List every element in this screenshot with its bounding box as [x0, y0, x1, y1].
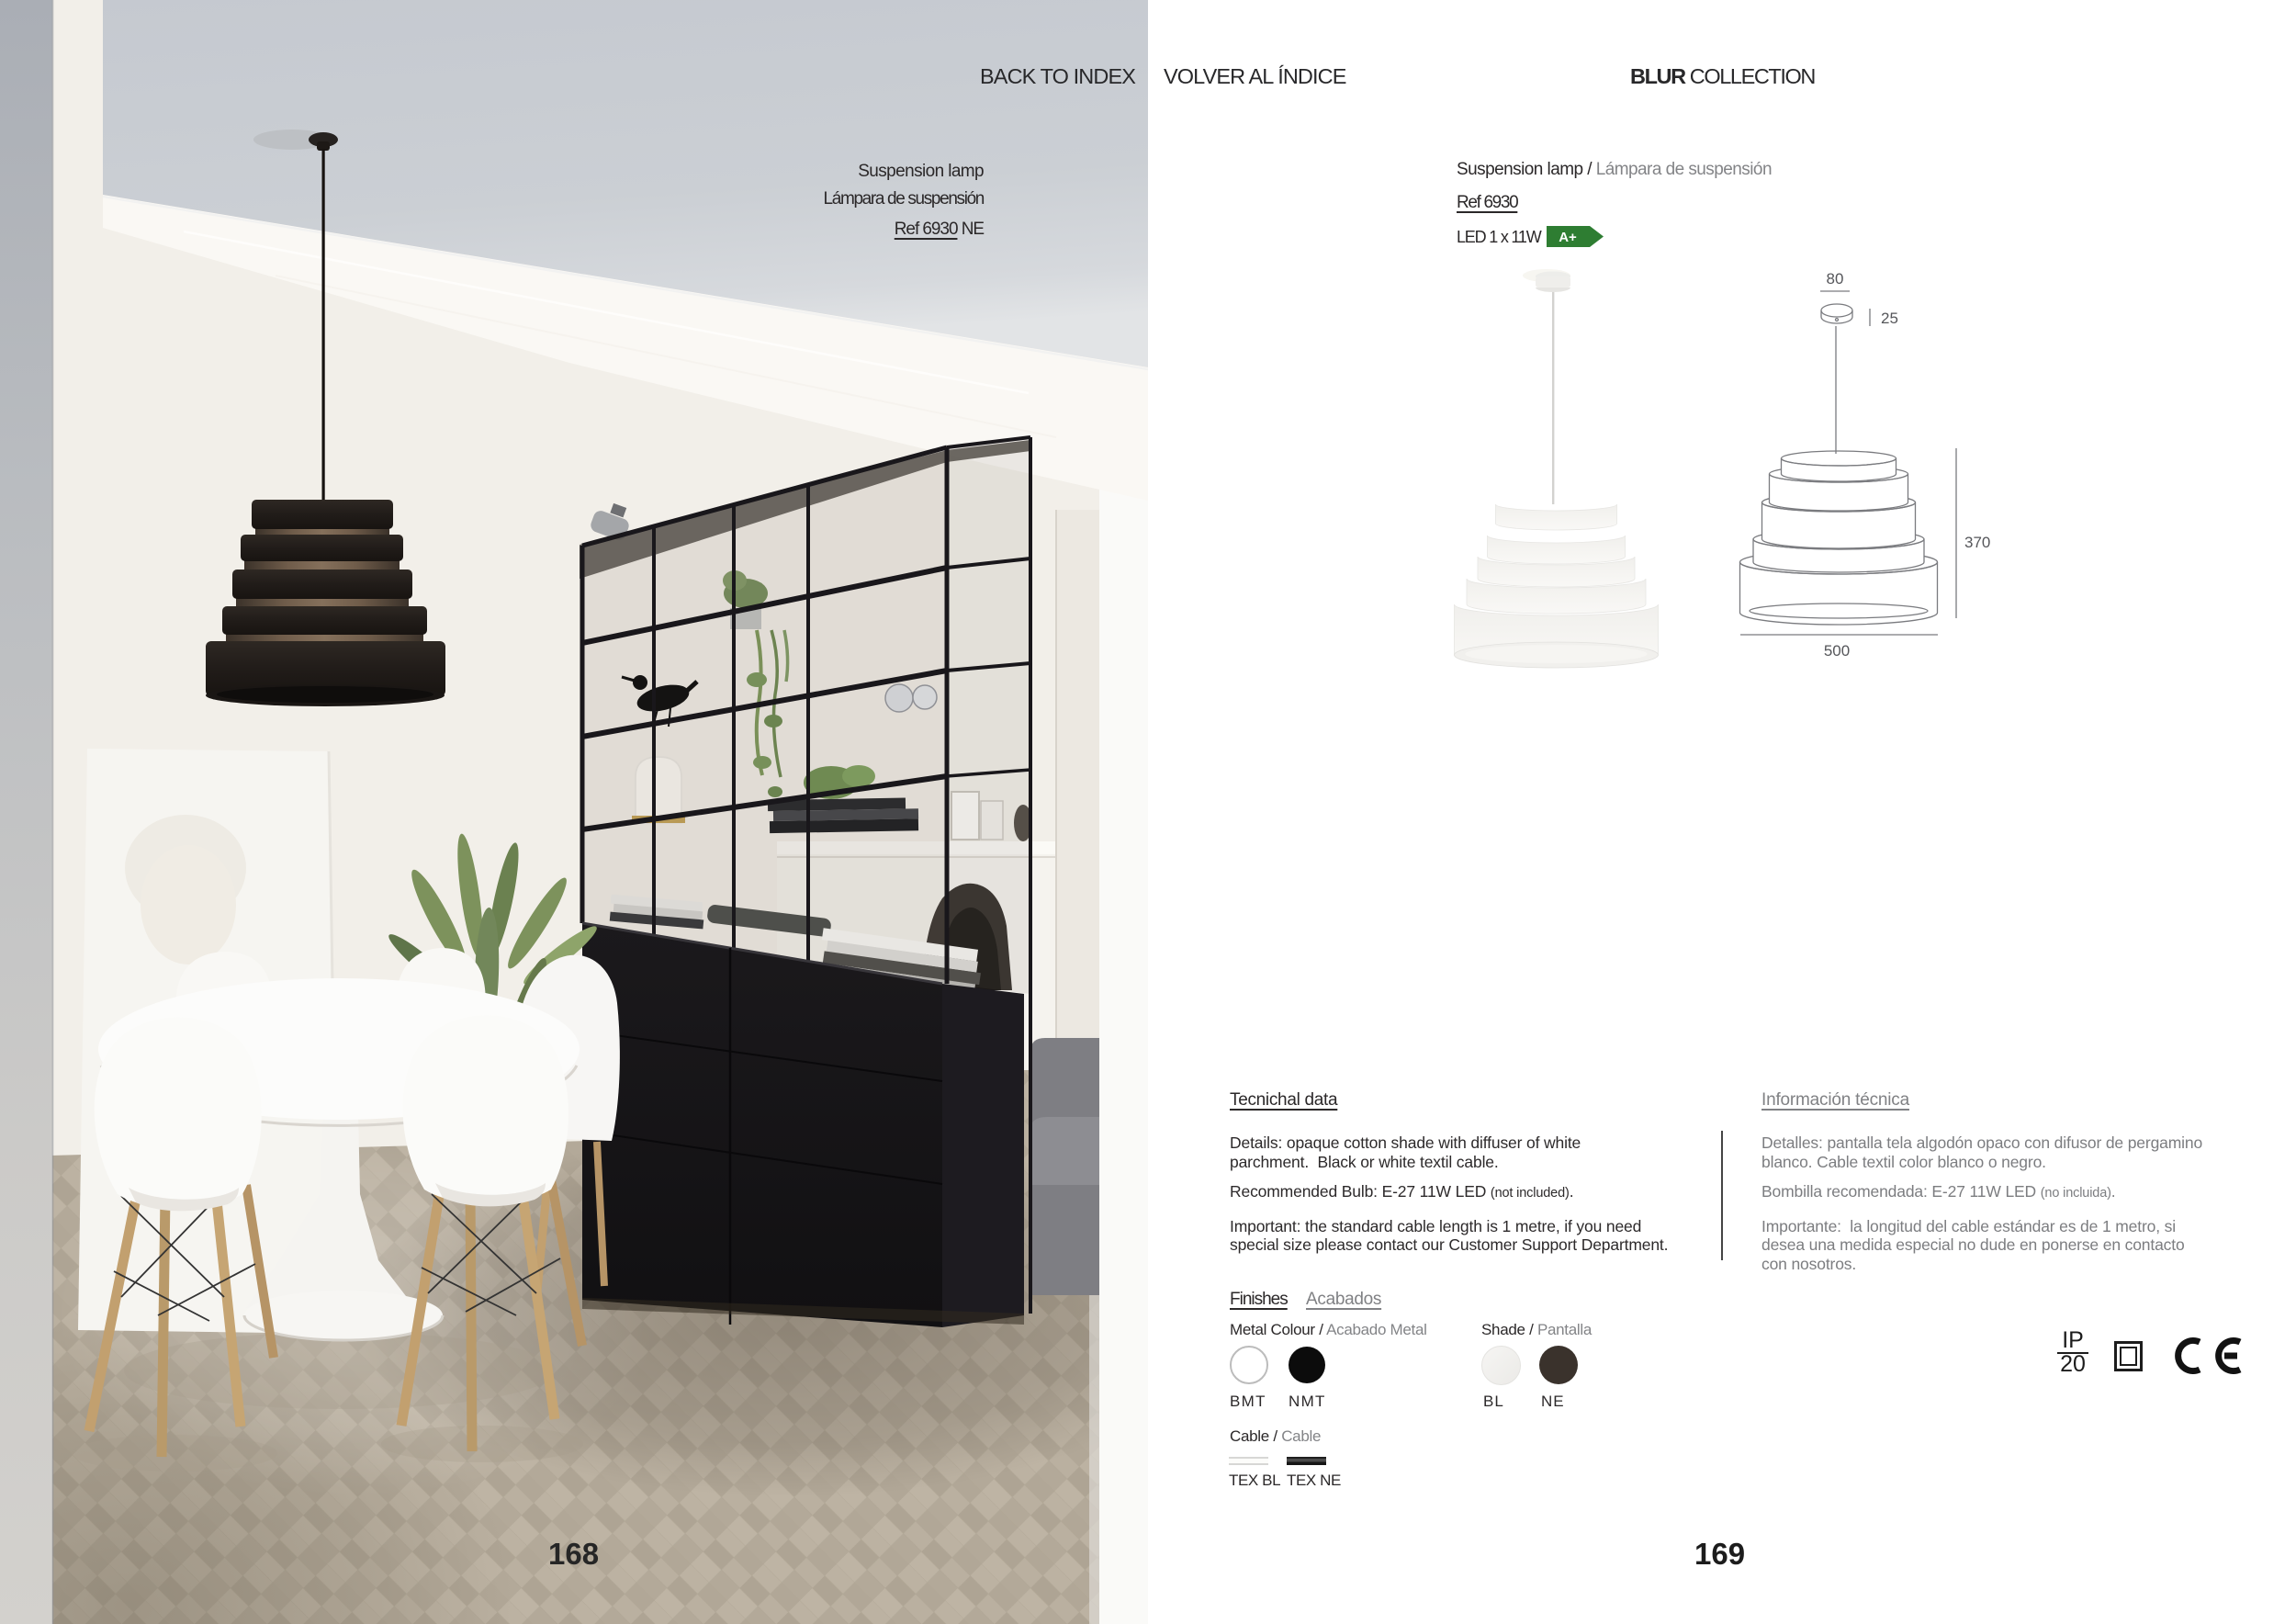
svg-text:370: 370	[1964, 534, 1990, 551]
svg-text:A+: A+	[1559, 230, 1577, 245]
svg-text:25: 25	[1881, 310, 1898, 327]
svg-text:500: 500	[1824, 642, 1850, 660]
svg-text:80: 80	[1827, 270, 1844, 288]
